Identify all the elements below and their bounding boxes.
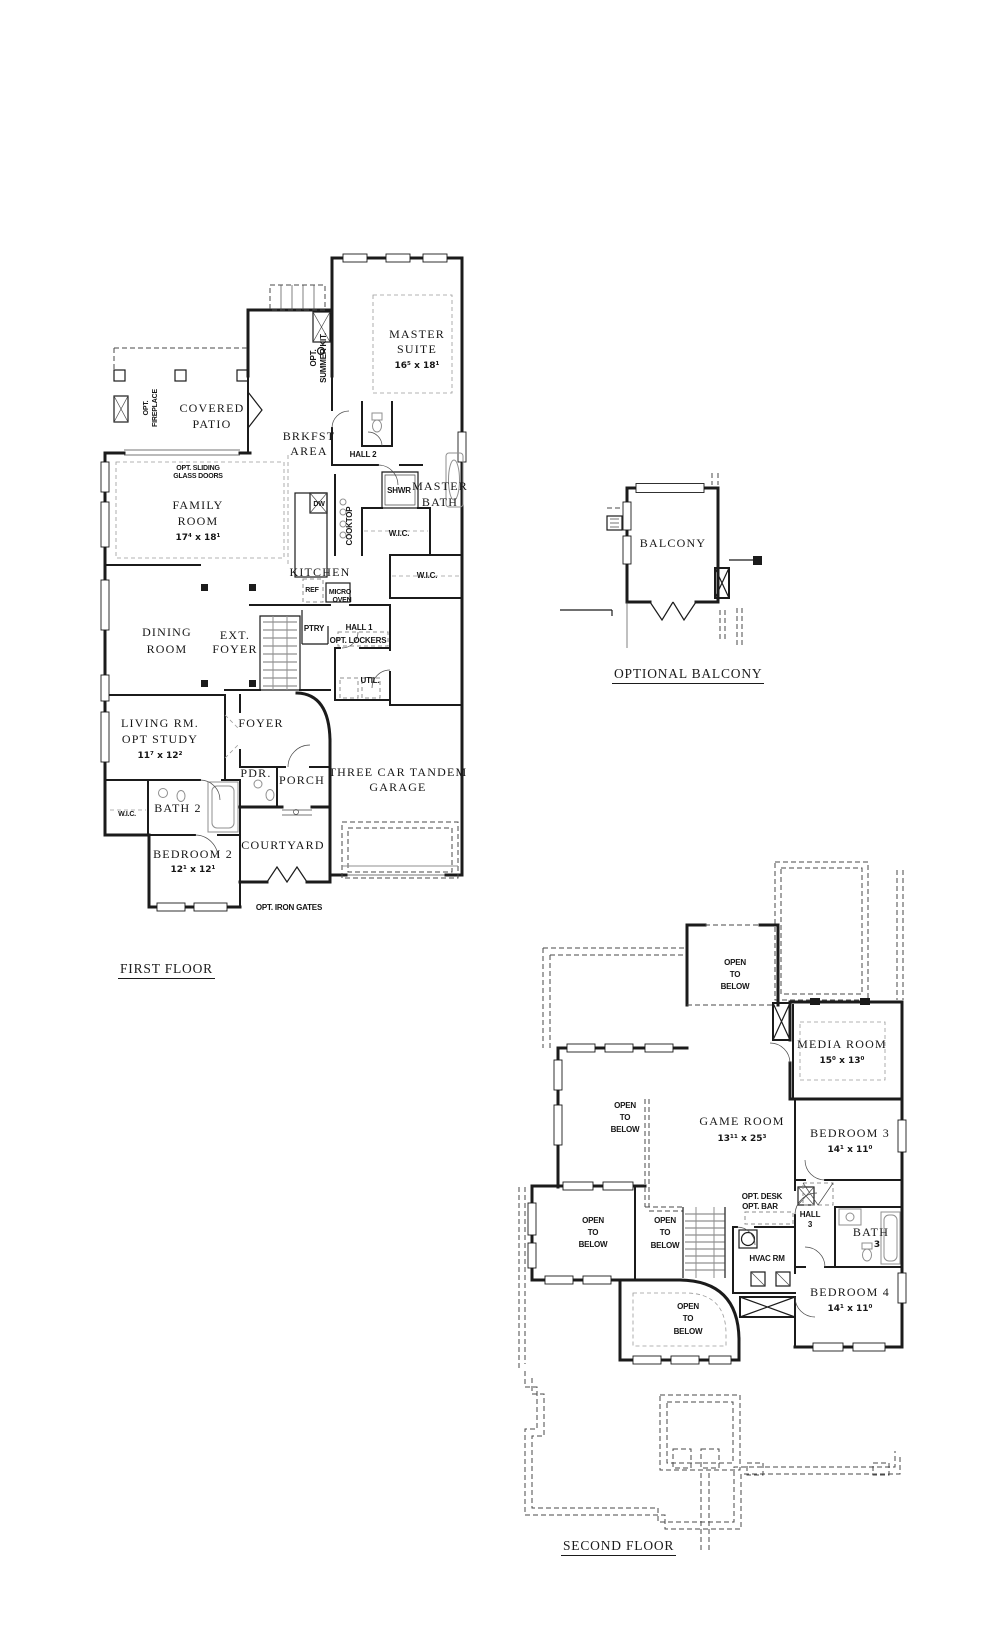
label-opt-fireplace: OPT. xyxy=(143,400,150,415)
label-otb-stair-2: TO xyxy=(660,1228,671,1237)
label-bath-3-num: 3 xyxy=(874,1240,880,1250)
label-media-room-dims: 15⁰ x 13⁰ xyxy=(819,1056,864,1066)
label-game-room-dims: 13¹¹ x 25³ xyxy=(718,1134,767,1144)
label-bedroom-2: BEDROOM 2 xyxy=(153,847,233,861)
label-opt-iron-gates: OPT. IRON GATES xyxy=(256,903,323,912)
label-bedroom-2-dims: 12¹ x 12¹ xyxy=(170,865,215,875)
label-otb-left-2: TO xyxy=(620,1113,631,1122)
label-oven: OVEN xyxy=(332,597,351,604)
label-hall-3-num: 3 xyxy=(808,1220,813,1229)
balcony-walls xyxy=(560,473,762,648)
label-opt-sliding: OPT. SLIDING xyxy=(176,465,220,472)
label-dining-room-2: ROOM xyxy=(147,642,188,656)
label-bath-2: BATH 2 xyxy=(154,801,202,815)
label-otb-stair-3: BELOW xyxy=(651,1241,680,1250)
label-game-room: GAME ROOM xyxy=(699,1114,784,1128)
label-wic-2: W.I.C. xyxy=(417,571,438,580)
label-otb-bottom-1: OPEN xyxy=(677,1302,699,1311)
label-living-dims: 11⁷ x 12² xyxy=(137,751,182,761)
label-opt-study: OPT STUDY xyxy=(122,732,198,746)
label-otb-bottom-2: TO xyxy=(683,1314,694,1323)
label-balcony: BALCONY xyxy=(640,536,706,550)
label-ext-foyer: EXT. xyxy=(220,628,250,642)
label-family-room: FAMILY xyxy=(172,498,223,512)
label-ptry: PTRY xyxy=(304,624,325,633)
label-master-bath-2: BATH xyxy=(422,495,458,509)
label-master-suite: MASTER xyxy=(389,327,445,341)
label-hall-2: HALL 2 xyxy=(350,450,377,459)
label-kitchen: KITCHEN xyxy=(289,565,350,579)
label-opt-lockers: OPT. LOCKERS xyxy=(330,636,388,645)
label-hall-1: HALL 1 xyxy=(346,623,373,632)
label-otb-mid-2: TO xyxy=(588,1228,599,1237)
label-family-room-dims: 17⁴ x 18¹ xyxy=(175,533,220,543)
label-wic-3: W.I.C. xyxy=(118,811,136,818)
label-foyer: FOYER xyxy=(238,716,283,730)
second-floor-plan: OPEN TO BELOW MEDIA ROOM 15⁰ x 13⁰ OPEN … xyxy=(505,815,910,1565)
label-master-suite-2: SUITE xyxy=(397,342,437,356)
label-family-room-2: ROOM xyxy=(178,514,219,528)
label-pdr: PDR. xyxy=(240,766,271,780)
optional-balcony-plan: BALCONY xyxy=(560,440,770,690)
label-micro: MICRO xyxy=(329,589,352,596)
label-porch: PORCH xyxy=(279,773,325,787)
first-floor-stairs xyxy=(260,616,300,690)
second-floor-windows xyxy=(528,1044,906,1364)
label-garage-2: GARAGE xyxy=(369,780,426,794)
label-wic-1: W.I.C. xyxy=(389,529,410,538)
label-otb-left-1: OPEN xyxy=(614,1101,636,1110)
label-opt-summer-kit-2: SUMMER KIT. xyxy=(319,333,328,383)
label-opt-fireplace-2: FIREPLACE xyxy=(152,389,159,427)
first-floor-title: FIRST FLOOR xyxy=(118,961,215,979)
label-bedroom-4-dims: 14¹ x 11⁰ xyxy=(827,1304,872,1314)
label-living-rm: LIVING RM. xyxy=(121,716,199,730)
label-otb-left-3: BELOW xyxy=(611,1125,640,1134)
label-covered-patio: COVERED xyxy=(179,401,244,415)
label-garage: THREE CAR TANDEM xyxy=(329,765,468,779)
optional-balcony-title: OPTIONAL BALCONY xyxy=(612,666,764,684)
first-floor-labels: MASTER SUITE 16⁵ x 18¹ OPT. SUMMER KIT. … xyxy=(118,295,468,912)
label-otb-top-1: OPEN xyxy=(724,958,746,967)
label-dw: DW xyxy=(313,501,325,508)
label-ext-foyer-2: FOYER xyxy=(212,642,257,656)
label-brkfst-area-2: AREA xyxy=(290,444,327,458)
label-otb-stair-1: OPEN xyxy=(654,1216,676,1225)
label-opt-sliding-2: GLASS DOORS xyxy=(173,473,223,480)
label-media-room: MEDIA ROOM xyxy=(797,1037,887,1051)
label-cooktop: COOKTOP xyxy=(345,506,354,546)
label-bedroom-4: BEDROOM 4 xyxy=(810,1285,890,1299)
second-floor-stairs xyxy=(683,1207,725,1278)
label-util: UTIL. xyxy=(361,676,380,685)
second-floor-title: SECOND FLOOR xyxy=(561,1538,676,1556)
label-shwr: SHWR xyxy=(387,486,411,495)
label-bath-3: BATH xyxy=(853,1225,889,1239)
label-master-suite-dims: 16⁵ x 18¹ xyxy=(394,361,439,371)
label-hvac: HVAC RM xyxy=(749,1254,785,1263)
label-otb-bottom-3: BELOW xyxy=(674,1327,703,1336)
label-covered-patio-2: PATIO xyxy=(193,417,232,431)
label-dining-room: DINING xyxy=(142,625,192,639)
label-otb-mid-1: OPEN xyxy=(582,1216,604,1225)
label-bedroom-3-dims: 14¹ x 11⁰ xyxy=(827,1145,872,1155)
label-opt-summer-kit: OPT. xyxy=(309,350,318,367)
label-brkfst-area: BRKFST xyxy=(283,429,336,443)
floor-plan-sheet: MASTER SUITE 16⁵ x 18¹ OPT. SUMMER KIT. … xyxy=(0,0,1000,1647)
label-ref: REF xyxy=(305,587,319,594)
label-otb-mid-3: BELOW xyxy=(579,1240,608,1249)
label-opt-desk: OPT. DESK xyxy=(742,1192,783,1201)
label-opt-bar: OPT. BAR xyxy=(742,1202,778,1211)
label-otb-top-3: BELOW xyxy=(721,982,750,991)
label-courtyard: COURTYARD xyxy=(241,838,324,852)
label-hall-3: HALL xyxy=(800,1210,821,1219)
label-master-bath: MASTER xyxy=(412,479,468,493)
first-floor-plan: MASTER SUITE 16⁵ x 18¹ OPT. SUMMER KIT. … xyxy=(100,250,470,940)
label-otb-top-2: TO xyxy=(730,970,741,979)
label-bedroom-3: BEDROOM 3 xyxy=(810,1126,890,1140)
